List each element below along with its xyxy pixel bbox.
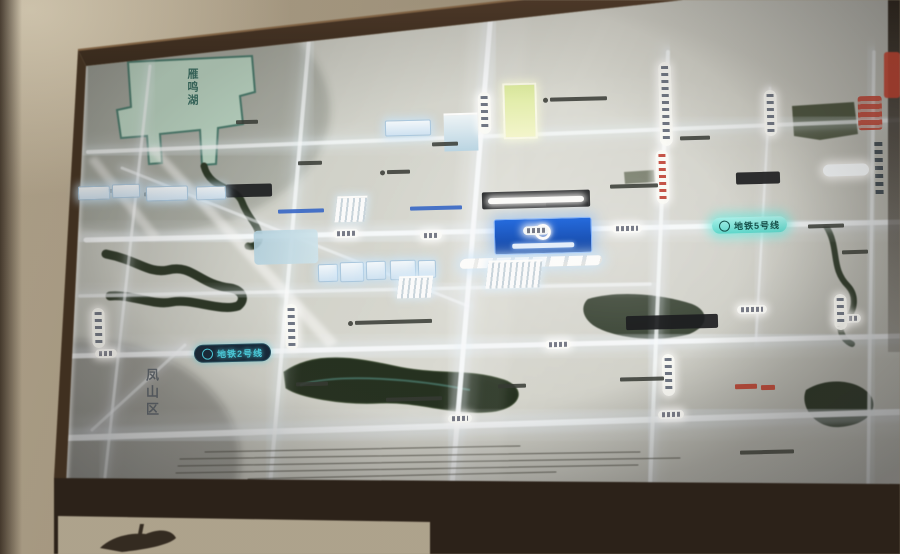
building-cluster-icon bbox=[397, 276, 434, 299]
map-text-label bbox=[610, 183, 658, 188]
red-text-label bbox=[761, 385, 775, 390]
map-labels-layer: 雁鸣湖 凤山区 地铁5号线 地铁2号线 bbox=[0, 0, 900, 554]
metro-station-pill bbox=[95, 349, 117, 359]
road-name-capsule bbox=[661, 354, 675, 396]
road-name-capsule bbox=[834, 294, 848, 330]
glowing-building-block bbox=[146, 185, 188, 201]
glowing-building-block bbox=[385, 119, 431, 136]
blue-text-label bbox=[410, 205, 462, 210]
metro-station-pill bbox=[448, 414, 472, 424]
glowing-building-block bbox=[318, 264, 338, 283]
map-text-label bbox=[543, 96, 607, 102]
map-text-label bbox=[498, 384, 526, 389]
map-text-label bbox=[298, 161, 322, 166]
metro-station-pill bbox=[737, 305, 767, 315]
road-name-capsule bbox=[284, 304, 298, 350]
road-name-capsule bbox=[763, 90, 777, 136]
map-text-label bbox=[386, 396, 442, 401]
glowing-building-block bbox=[196, 186, 226, 201]
metro-station-pill bbox=[333, 229, 359, 239]
map-text-label bbox=[296, 382, 328, 387]
map-text-label bbox=[680, 136, 710, 141]
glowing-building-block bbox=[112, 184, 140, 199]
map-text-label bbox=[236, 120, 258, 125]
map-text-label bbox=[740, 449, 794, 454]
glowing-label bbox=[823, 163, 869, 176]
metro-station-pill bbox=[420, 231, 442, 241]
road-name-capsule bbox=[655, 150, 669, 204]
photo-of-map-board: 雁鸣湖 凤山区 地铁5号线 地铁2号线 bbox=[0, 0, 900, 554]
dark-label-box bbox=[626, 314, 718, 330]
dark-label-box bbox=[482, 190, 590, 210]
blue-text-label bbox=[278, 208, 324, 213]
road-name-capsule bbox=[871, 138, 887, 200]
map-text-label bbox=[348, 319, 432, 325]
glowing-building-block bbox=[78, 186, 110, 201]
dark-label-box bbox=[226, 183, 272, 197]
glowing-building-block bbox=[366, 261, 386, 281]
map-text-label bbox=[842, 250, 868, 255]
map-text-label bbox=[620, 376, 664, 381]
map-text-label bbox=[380, 170, 410, 175]
road-name-capsule bbox=[658, 62, 673, 146]
road-name-capsule bbox=[91, 308, 105, 348]
road-name-capsule bbox=[477, 92, 491, 134]
building-cluster-icon bbox=[485, 259, 542, 289]
glowing-building-block bbox=[340, 262, 365, 283]
metro-station-pill bbox=[523, 226, 549, 236]
metro-station-pill bbox=[612, 224, 642, 234]
metro-station-pill bbox=[545, 340, 571, 350]
dark-label-box bbox=[736, 171, 780, 184]
metro-station-pill bbox=[658, 410, 684, 420]
building-cluster-icon bbox=[335, 196, 368, 223]
map-text-label bbox=[432, 142, 458, 147]
map-text-label bbox=[808, 224, 844, 229]
red-text-label bbox=[735, 384, 757, 390]
generated-map-features bbox=[0, 0, 900, 554]
